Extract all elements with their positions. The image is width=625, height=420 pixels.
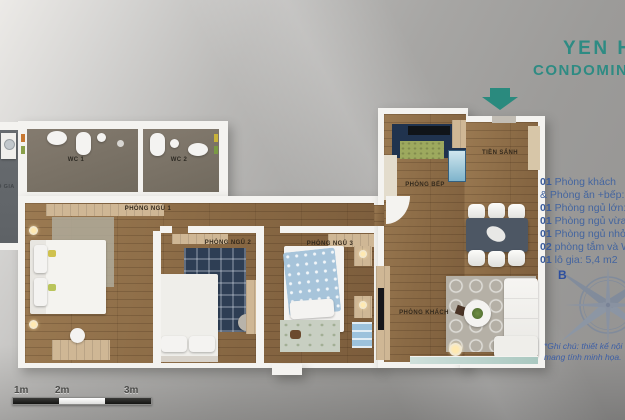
scale-label-2m: 2m [55, 385, 69, 396]
wall-corridor [280, 226, 374, 233]
kitchen-label: PHÒNG BẾP [405, 182, 445, 188]
towel-yellow-icon [214, 134, 218, 142]
plant-icon [472, 308, 483, 319]
scale-label-1m: 1m [14, 385, 28, 396]
dresser-blue [352, 322, 372, 348]
floorplan-page: LÔ GIA WC 1 WC 2 [0, 0, 625, 420]
sink-icon [47, 131, 67, 145]
living-label: PHÒNG KHÁCH [399, 310, 449, 316]
range-hood-icon [408, 126, 450, 135]
hall-label: TIỀN SẢNH [482, 150, 518, 156]
toilet-icon [76, 132, 91, 155]
lamp-icon [29, 226, 38, 235]
bedroom2-label: PHÒNG NGỦ 2 [205, 240, 251, 246]
footnote: *Ghi chú: thiết kế nội thất mang tính mi… [544, 341, 625, 362]
shower-head-icon [97, 133, 106, 142]
floor-lamp-icon [449, 343, 462, 356]
kitchen-cabinet-tall [452, 120, 466, 148]
kitchen-island-green [400, 141, 444, 159]
pillow [161, 336, 187, 352]
towel-orange-icon [21, 134, 25, 142]
lamp-icon [29, 320, 38, 329]
kitchen-cabinet [384, 155, 397, 200]
scale-segment-dark [105, 398, 151, 404]
pillow [34, 245, 47, 273]
wc1-label: WC 1 [68, 157, 85, 163]
cushion-yellow-icon [48, 284, 56, 291]
room-legend: 01 Phòng khách & Phòng ăn +bếp: 33, 01 P… [540, 176, 625, 267]
entrance-arrow-head-icon [482, 97, 518, 110]
headboard [158, 356, 218, 362]
washer-door-icon [4, 139, 15, 150]
lamp-icon [359, 250, 367, 258]
dining-chair [468, 250, 485, 266]
wall-bedroom2-3 [256, 231, 264, 363]
project-title-line1: YEN HOA [563, 38, 625, 60]
scale-label-3m: 3m [124, 385, 138, 396]
desk-chair [70, 328, 85, 343]
wall-balcony-bottom [0, 242, 20, 250]
wall-corridor [188, 226, 264, 233]
wall-bottom-tab [272, 364, 302, 375]
rug-kids [280, 320, 340, 352]
towel-green-icon [214, 146, 218, 154]
sofa-chaise [494, 336, 538, 358]
compass-north-label: B [558, 268, 567, 282]
legend-line: 01 Phòng ngủ lớn: 19 [540, 202, 625, 215]
desk [52, 340, 110, 360]
dining-chair [488, 251, 505, 267]
tv-icon [378, 288, 384, 330]
scale-segment-dark [13, 398, 59, 404]
legend-line: 01 Phòng ngủ nhỏ: 11 [540, 228, 625, 241]
legend-line: 01 Phòng khách [540, 176, 625, 189]
pillow [289, 298, 334, 319]
legend-line: 02 phòng tắm và WC [540, 241, 625, 254]
window-band [410, 356, 538, 365]
pillow [34, 278, 47, 306]
bedroom3-label: PHÒNG NGỦ 3 [307, 241, 353, 247]
wall-corridor [160, 226, 172, 233]
legend-line: & Phòng ăn +bếp: 33, [540, 189, 625, 202]
footnote-line2: mang tính minh họa. [544, 352, 625, 363]
dining-chair [488, 203, 505, 219]
bedroom1-label: PHÒNG NGỦ 1 [125, 206, 171, 212]
entry-door [492, 116, 516, 123]
scale-segment-light [59, 398, 105, 404]
balcony-label: LÔ GIA [0, 184, 15, 190]
wc2-label: WC 2 [171, 157, 188, 163]
scale-bar [12, 397, 152, 405]
toilet-icon [150, 133, 165, 156]
sink-icon [188, 143, 208, 156]
pillow [189, 336, 215, 352]
teddy-bear-icon [290, 330, 301, 339]
legend-line: 01 Phòng ngủ vừa: 15 [540, 215, 625, 228]
project-title-line2: CONDOMINIUM [533, 62, 625, 79]
wall-bedroom1-2 [153, 231, 161, 363]
towel-green-icon [21, 146, 25, 154]
fridge-icon [448, 150, 466, 182]
dining-chair [508, 250, 525, 266]
entrance-arrow-icon [490, 88, 510, 97]
footnote-line1: *Ghi chú: thiết kế nội thất [544, 341, 625, 352]
shoe-cabinet [528, 126, 540, 170]
shower-head-icon [170, 139, 179, 148]
cushion-yellow-icon [48, 250, 56, 257]
corridor-connector [374, 205, 384, 226]
lamp-icon [359, 301, 367, 309]
drain-icon [117, 140, 124, 147]
